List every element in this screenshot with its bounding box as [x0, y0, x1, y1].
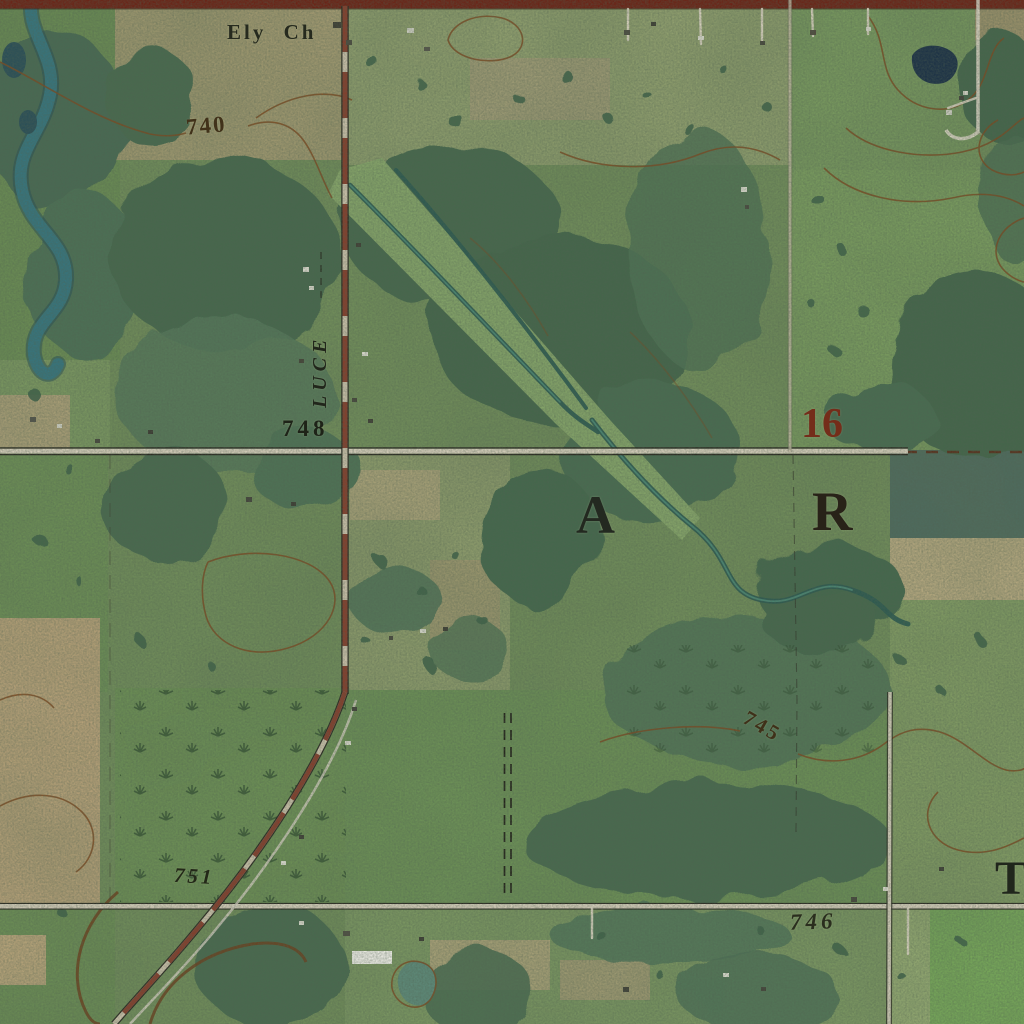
aerial-grain-overlay [0, 0, 1024, 1024]
topo-map-canvas[interactable]: Ely Ch 740 LUCE 748 16 A R 745 751 746 T [0, 0, 1024, 1024]
map-artwork [0, 0, 1024, 1024]
